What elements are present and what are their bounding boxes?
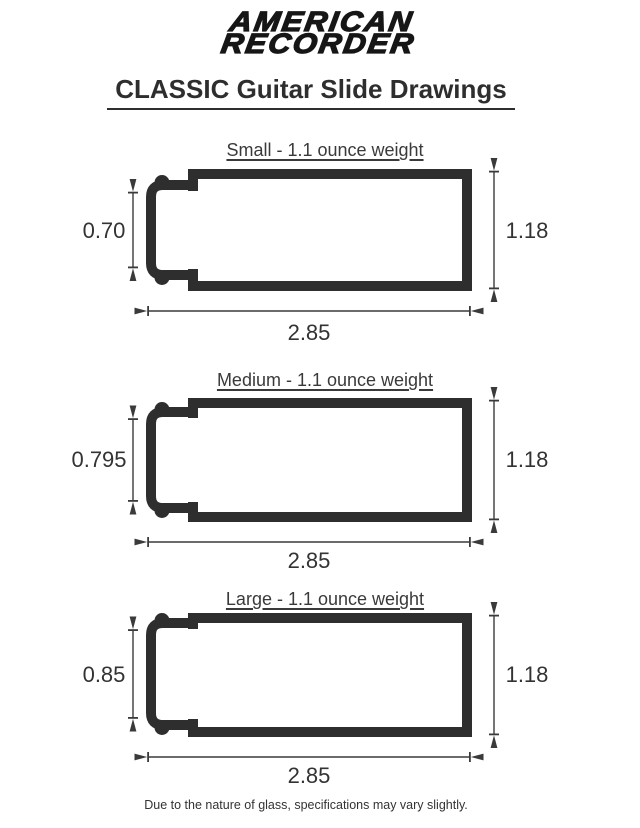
label-length-large: 2.85 xyxy=(259,763,359,789)
rim-bead-top-medium xyxy=(155,402,170,417)
label-outer-large: 1.18 xyxy=(477,662,577,688)
rim-bead-bottom-small xyxy=(155,270,170,285)
slide-body-outline-small xyxy=(193,174,467,286)
label-length-small: 2.85 xyxy=(259,320,359,346)
slide-profile-medium xyxy=(133,401,494,543)
rim-bead-bottom-medium xyxy=(155,503,170,518)
rim-bead-bottom-large xyxy=(155,720,170,735)
label-opening-large: 0.85 xyxy=(54,662,154,688)
footnote: Due to the nature of glass, specificatio… xyxy=(0,798,626,812)
label-opening-medium: 0.795 xyxy=(49,447,149,473)
slide-body-outline-large xyxy=(193,618,467,732)
label-outer-small: 1.18 xyxy=(477,218,577,244)
slide-drawings-canvas xyxy=(0,0,640,828)
slide-mouth-outline-small xyxy=(151,185,196,275)
slide-profile-small xyxy=(133,172,494,312)
slide-profile-large xyxy=(133,613,494,757)
slide-mouth-outline-medium xyxy=(151,412,196,508)
rim-bead-top-large xyxy=(155,613,170,628)
slide-mouth-outline-large xyxy=(151,623,196,725)
spec-sheet-page: AMERICAN RECORDER CLASSIC Guitar Slide D… xyxy=(0,0,640,828)
slide-body-outline-medium xyxy=(193,403,467,517)
label-length-medium: 2.85 xyxy=(259,548,359,574)
label-outer-medium: 1.18 xyxy=(477,447,577,473)
rim-bead-top-small xyxy=(155,175,170,190)
label-opening-small: 0.70 xyxy=(54,218,154,244)
